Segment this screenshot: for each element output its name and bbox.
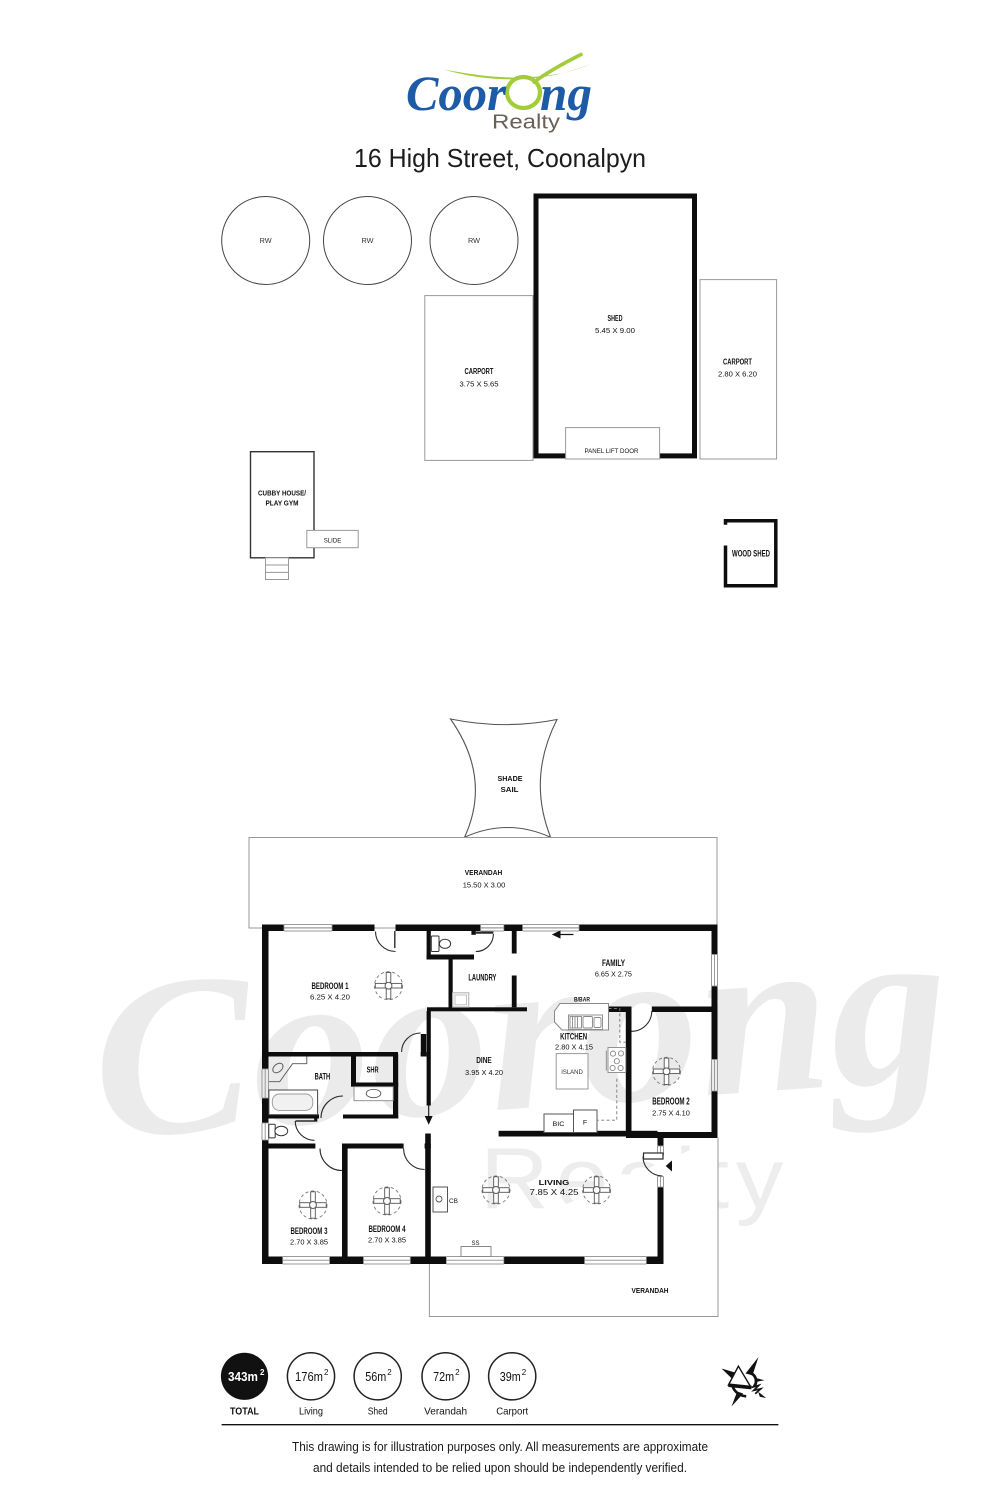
svg-text:Shed: Shed	[368, 1406, 388, 1418]
svg-text:VERANDAH: VERANDAH	[632, 1288, 669, 1295]
svg-text:LIVING: LIVING	[539, 1180, 570, 1187]
svg-text:PANEL LIFT DOOR: PANEL LIFT DOOR	[585, 448, 639, 455]
svg-text:SS: SS	[472, 1241, 480, 1247]
svg-text:VERANDAH: VERANDAH	[465, 870, 503, 877]
svg-text:SHADE: SHADE	[498, 774, 523, 783]
svg-text:BEDROOM 3: BEDROOM 3	[291, 1226, 328, 1236]
svg-text:ISLAND: ISLAND	[561, 1069, 583, 1076]
svg-text:3.95 X 4.20: 3.95 X 4.20	[465, 1068, 503, 1077]
svg-text:7.85 X 4.25: 7.85 X 4.25	[530, 1188, 580, 1197]
svg-text:2.80 X 6.20: 2.80 X 6.20	[718, 370, 757, 379]
svg-text:LAUNDRY: LAUNDRY	[468, 973, 496, 983]
svg-text:2.70 X 3.85: 2.70 X 3.85	[368, 1236, 406, 1245]
svg-text:2.70 X 3.85: 2.70 X 3.85	[290, 1238, 328, 1247]
svg-text:F: F	[583, 1120, 588, 1127]
svg-text:5.45 X 9.00: 5.45 X 9.00	[595, 326, 635, 335]
svg-text:2: 2	[522, 1368, 527, 1377]
svg-text:72m: 72m	[433, 1370, 454, 1384]
svg-text:BIC: BIC	[553, 1121, 565, 1128]
svg-text:WOOD SHED: WOOD SHED	[732, 549, 770, 559]
svg-text:6.25 X 4.20: 6.25 X 4.20	[310, 993, 350, 1002]
svg-text:PLAY GYM: PLAY GYM	[266, 499, 299, 508]
svg-text:This drawing is for illustrati: This drawing is for illustration purpose…	[292, 1439, 708, 1454]
svg-text:RW: RW	[362, 238, 374, 245]
svg-text:SHED: SHED	[608, 314, 623, 323]
svg-text:56m: 56m	[365, 1370, 386, 1384]
svg-text:15.50 X 3.00: 15.50 X 3.00	[463, 881, 506, 890]
svg-text:RW: RW	[260, 238, 272, 245]
svg-text:DINE: DINE	[476, 1056, 492, 1065]
svg-text:CARPORT: CARPORT	[465, 367, 494, 376]
svg-text:CB: CB	[449, 1198, 458, 1205]
svg-text:Realty: Realty	[492, 112, 560, 134]
svg-text:KITCHEN: KITCHEN	[560, 1032, 587, 1042]
svg-text:FAMILY: FAMILY	[602, 958, 625, 968]
svg-text:B/BAR: B/BAR	[574, 997, 590, 1004]
svg-text:SAIL: SAIL	[501, 785, 519, 794]
svg-text:BEDROOM 2: BEDROOM 2	[652, 1097, 689, 1108]
svg-text:2.75 X 4.10: 2.75 X 4.10	[652, 1109, 690, 1118]
svg-text:6.65 X 2.75: 6.65 X 2.75	[595, 970, 632, 979]
svg-text:TOTAL: TOTAL	[230, 1406, 259, 1418]
svg-text:Verandah: Verandah	[424, 1406, 467, 1418]
svg-text:2: 2	[260, 1368, 265, 1377]
svg-text:SLIDE: SLIDE	[324, 538, 342, 545]
svg-text:16 High Street, Coonalpyn: 16 High Street, Coonalpyn	[354, 143, 646, 173]
svg-text:2.80 X 4.15: 2.80 X 4.15	[555, 1043, 593, 1052]
svg-text:BEDROOM 1: BEDROOM 1	[312, 981, 349, 991]
svg-text:39m: 39m	[500, 1370, 521, 1384]
svg-text:CUBBY HOUSE/: CUBBY HOUSE/	[258, 489, 306, 498]
svg-text:3.75 X 5.65: 3.75 X 5.65	[460, 380, 499, 389]
svg-text:176m: 176m	[295, 1370, 323, 1384]
svg-text:RW: RW	[468, 238, 480, 245]
svg-text:SHR: SHR	[367, 1066, 379, 1075]
svg-text:Living: Living	[299, 1406, 323, 1418]
svg-text:Carport: Carport	[496, 1406, 528, 1418]
svg-text:BEDROOM 4: BEDROOM 4	[369, 1224, 406, 1234]
svg-text:BATH: BATH	[315, 1072, 331, 1082]
svg-text:CARPORT: CARPORT	[723, 358, 752, 367]
svg-text:2: 2	[455, 1368, 460, 1377]
svg-text:343m: 343m	[228, 1370, 258, 1384]
svg-text:2: 2	[387, 1368, 392, 1377]
svg-text:and details intended to be rel: and details intended to be relied upon s…	[313, 1460, 687, 1475]
svg-text:2: 2	[324, 1368, 329, 1377]
